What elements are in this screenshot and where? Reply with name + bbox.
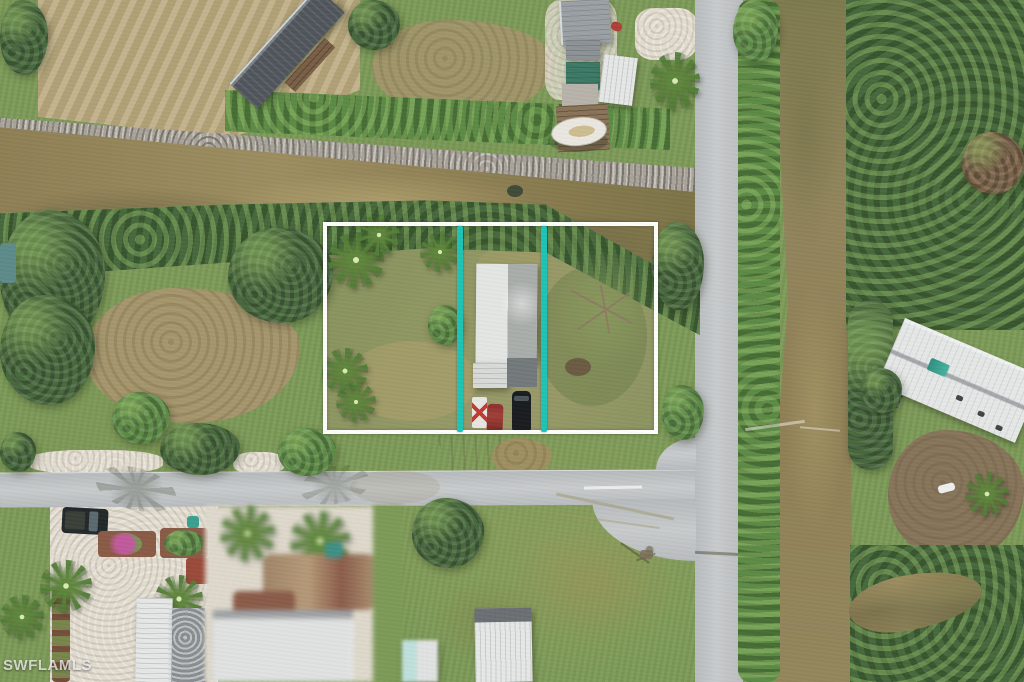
tree-top-center — [348, 0, 400, 50]
green-bin — [187, 516, 199, 528]
debris-in-water — [507, 185, 523, 197]
intersection-fillet-nw — [656, 438, 696, 470]
planter-bush — [164, 530, 204, 556]
gray-roof-section-2 — [566, 40, 600, 60]
teal-white-shed-bottom — [402, 640, 438, 682]
watermark: SWFLAMLS — [3, 657, 92, 674]
trees-north-road-1 — [160, 423, 240, 475]
roof-vent-2 — [977, 410, 985, 417]
trees-east-of-lot — [652, 222, 704, 310]
blurred-grass-edge — [373, 506, 402, 682]
tree-mid-left — [112, 392, 170, 444]
lot-divider-2 — [541, 226, 547, 432]
mangrove-strip-west-canal — [738, 0, 780, 682]
tree-over-house-corner — [862, 368, 902, 413]
tree-zone-c-big — [412, 498, 484, 568]
gravel-path-top-right — [635, 8, 697, 60]
palm-bottom-left-1 — [40, 560, 92, 612]
blurred-teal-item — [325, 542, 343, 558]
trees-north-road-2 — [278, 428, 336, 476]
aerial-photo: SWFLAMLS — [0, 0, 1024, 682]
trees-east-of-lot-south — [662, 385, 704, 440]
truck-bed — [65, 511, 86, 530]
planter-bougainvillea — [98, 531, 156, 557]
roof-vent-1 — [955, 395, 963, 402]
lot-divider-1 — [457, 226, 463, 432]
planter-green — [160, 528, 208, 558]
blurred-property — [205, 506, 402, 682]
bougainvillea-bloom — [106, 533, 142, 555]
white-roof-bottom-center — [474, 608, 532, 682]
trees-north-road-3 — [0, 432, 36, 472]
trees-west-of-lot — [228, 228, 333, 323]
trees-left-edge-middle — [0, 295, 95, 405]
palm-bottom-left-2 — [0, 595, 44, 639]
white-shed — [598, 54, 638, 106]
blurred-palm-1 — [220, 506, 275, 561]
gray-roof-bottom-left — [172, 608, 205, 682]
gray-roof-building-top — [559, 0, 611, 45]
road-vertical — [695, 0, 743, 682]
trees-overhang-road-top — [733, 0, 778, 62]
roof-dark-section — [474, 608, 531, 623]
skylight-teal — [927, 358, 950, 378]
palm-clearing-right — [965, 472, 1009, 516]
palm-top-right — [650, 52, 700, 110]
tree-corner-top-left — [0, 0, 48, 75]
truck-windshield — [88, 511, 98, 531]
teal-roof-behind-trees — [0, 243, 16, 283]
dead-tree-patch-right — [962, 132, 1024, 194]
property-boundary — [323, 222, 658, 434]
blurred-white-roof — [213, 610, 353, 682]
utility-box — [640, 550, 653, 559]
roof-vent-3 — [995, 424, 1003, 431]
white-roof-bottom-left — [135, 598, 172, 682]
